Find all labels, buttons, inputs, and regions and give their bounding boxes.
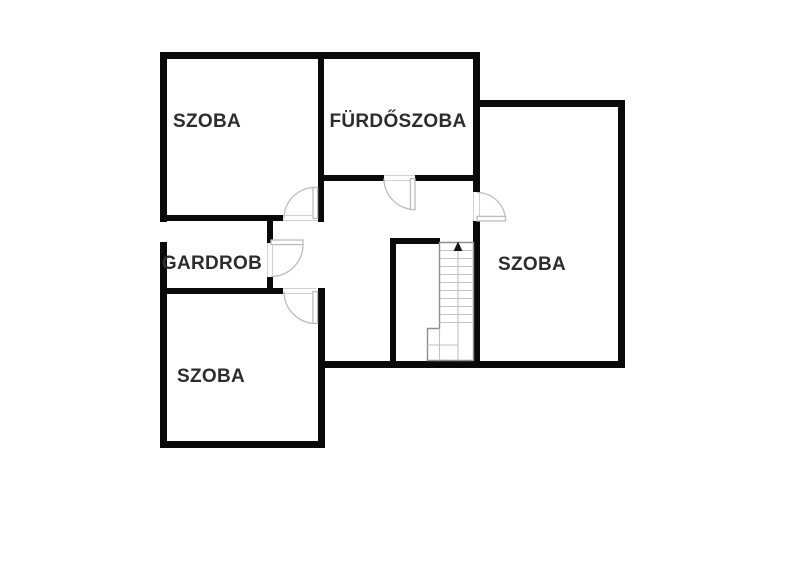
wall-room1-bottom xyxy=(160,215,283,221)
door-arc-gardrob xyxy=(271,245,303,277)
door-leaf-gardrob xyxy=(271,240,303,245)
door-leaf-room-bottom-left xyxy=(313,292,318,324)
wall-hall-bottom xyxy=(318,361,625,368)
room-label-gardrob: GARDROB xyxy=(162,253,262,275)
door-arc-room-bottom-left xyxy=(284,292,316,324)
wall-stair-top xyxy=(390,238,440,244)
room-label-furdoszoba: FÜRDŐSZOBA xyxy=(329,111,466,133)
wall-room3-right xyxy=(318,288,325,448)
door-leaf-bathroom xyxy=(410,179,415,210)
stair-outline xyxy=(428,243,474,361)
floor-plan: SZOBA FÜRDŐSZOBA GARDROB SZOBA SZOBA xyxy=(0,0,800,565)
door-arc-room-top-left xyxy=(284,188,315,219)
wall-right xyxy=(618,100,625,368)
wall-room-right-top xyxy=(473,100,625,107)
door-leaf-room-right xyxy=(477,216,506,221)
door-leaf-room-top-left xyxy=(313,188,318,219)
threshold-room3-door xyxy=(283,289,316,294)
room-label-szoba-top-left: SZOBA xyxy=(173,111,241,133)
wall-left-upper xyxy=(160,52,167,222)
staircase xyxy=(428,242,474,361)
floor-plan-drawing xyxy=(0,0,800,565)
wall-room1-bathroom-divider xyxy=(318,52,324,222)
threshold-gardrob-door xyxy=(268,243,273,277)
room-label-szoba-right: SZOBA xyxy=(498,254,566,276)
wall-room3-bottom xyxy=(160,441,325,448)
wall-bathroom-bottom-right xyxy=(415,175,480,181)
wall-stair-left xyxy=(390,238,396,368)
wall-gardrob-right-upper xyxy=(267,215,273,243)
room-label-szoba-bottom-left: SZOBA xyxy=(177,366,245,388)
wall-room3-top xyxy=(160,288,283,294)
wall-divider-upper xyxy=(473,52,480,192)
wall-bathroom-bottom-left xyxy=(318,175,384,181)
